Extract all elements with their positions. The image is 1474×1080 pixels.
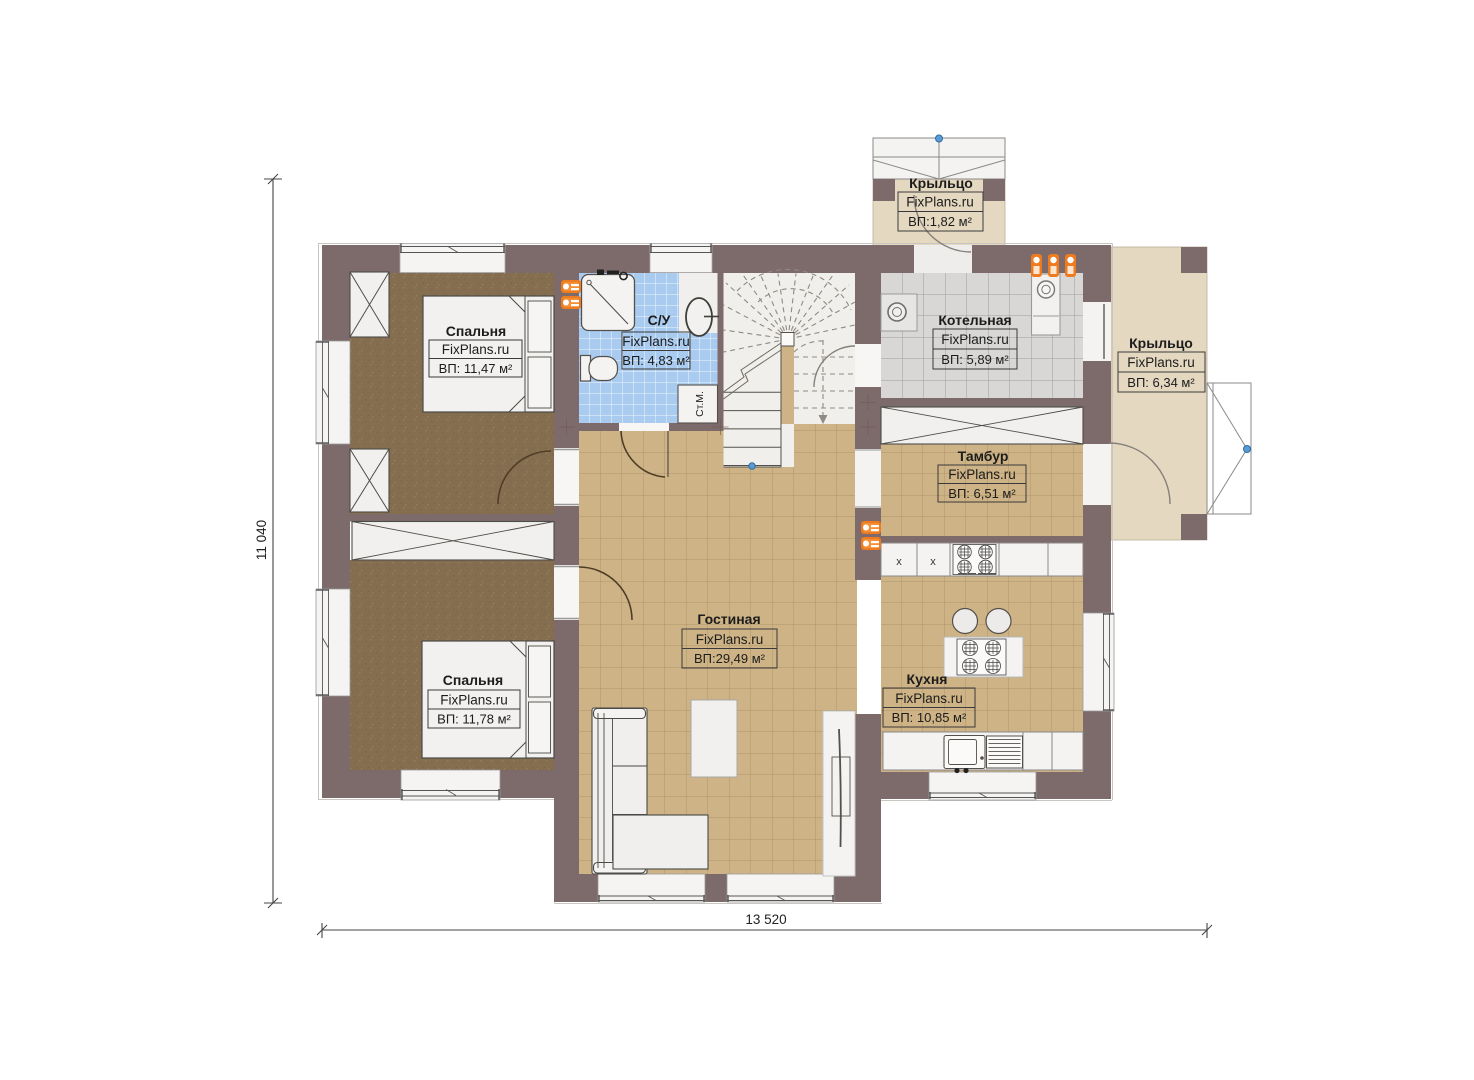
svg-text:Котельная: Котельная <box>938 312 1011 328</box>
svg-text:ВП: 6,34 м²: ВП: 6,34 м² <box>1127 375 1195 390</box>
svg-text:Ст.М.: Ст.М. <box>694 391 706 417</box>
svg-text:Тамбур: Тамбур <box>958 448 1009 464</box>
svg-text:Кухня: Кухня <box>907 671 948 687</box>
svg-text:ВП: 5,89 м²: ВП: 5,89 м² <box>941 352 1009 367</box>
svg-text:FixPlans.ru: FixPlans.ru <box>440 693 508 708</box>
svg-text:ВП: 11,47 м²: ВП: 11,47 м² <box>439 361 513 376</box>
svg-text:Гостиная: Гостиная <box>697 611 760 627</box>
svg-text:Спальня: Спальня <box>446 323 506 339</box>
svg-text:FixPlans.ru: FixPlans.ru <box>895 691 963 706</box>
svg-text:Спальня: Спальня <box>443 672 503 688</box>
svg-text:FixPlans.ru: FixPlans.ru <box>622 334 690 349</box>
svg-text:x: x <box>930 556 936 568</box>
svg-text:13 520: 13 520 <box>745 912 786 927</box>
svg-text:ВП: 10,85 м²: ВП: 10,85 м² <box>892 710 967 725</box>
svg-text:11 040: 11 040 <box>254 520 269 560</box>
svg-text:ВП:29,49 м²: ВП:29,49 м² <box>694 651 766 666</box>
svg-text:FixPlans.ru: FixPlans.ru <box>442 342 510 357</box>
svg-text:x: x <box>896 556 902 568</box>
svg-text:Крыльцо: Крыльцо <box>909 175 973 191</box>
svg-text:ВП: 4,83 м²: ВП: 4,83 м² <box>622 353 690 368</box>
svg-text:ВП:1,82 м²: ВП:1,82 м² <box>908 214 972 229</box>
svg-text:С/У: С/У <box>648 312 671 328</box>
svg-text:Крыльцо: Крыльцо <box>1129 335 1193 351</box>
svg-text:FixPlans.ru: FixPlans.ru <box>941 332 1009 347</box>
svg-text:FixPlans.ru: FixPlans.ru <box>948 467 1016 482</box>
svg-text:ВП: 6,51 м²: ВП: 6,51 м² <box>948 486 1016 501</box>
svg-text:FixPlans.ru: FixPlans.ru <box>1127 355 1195 370</box>
svg-text:FixPlans.ru: FixPlans.ru <box>696 632 764 647</box>
svg-text:ВП: 11,78 м²: ВП: 11,78 м² <box>437 712 511 727</box>
svg-text:FixPlans.ru: FixPlans.ru <box>906 195 974 210</box>
